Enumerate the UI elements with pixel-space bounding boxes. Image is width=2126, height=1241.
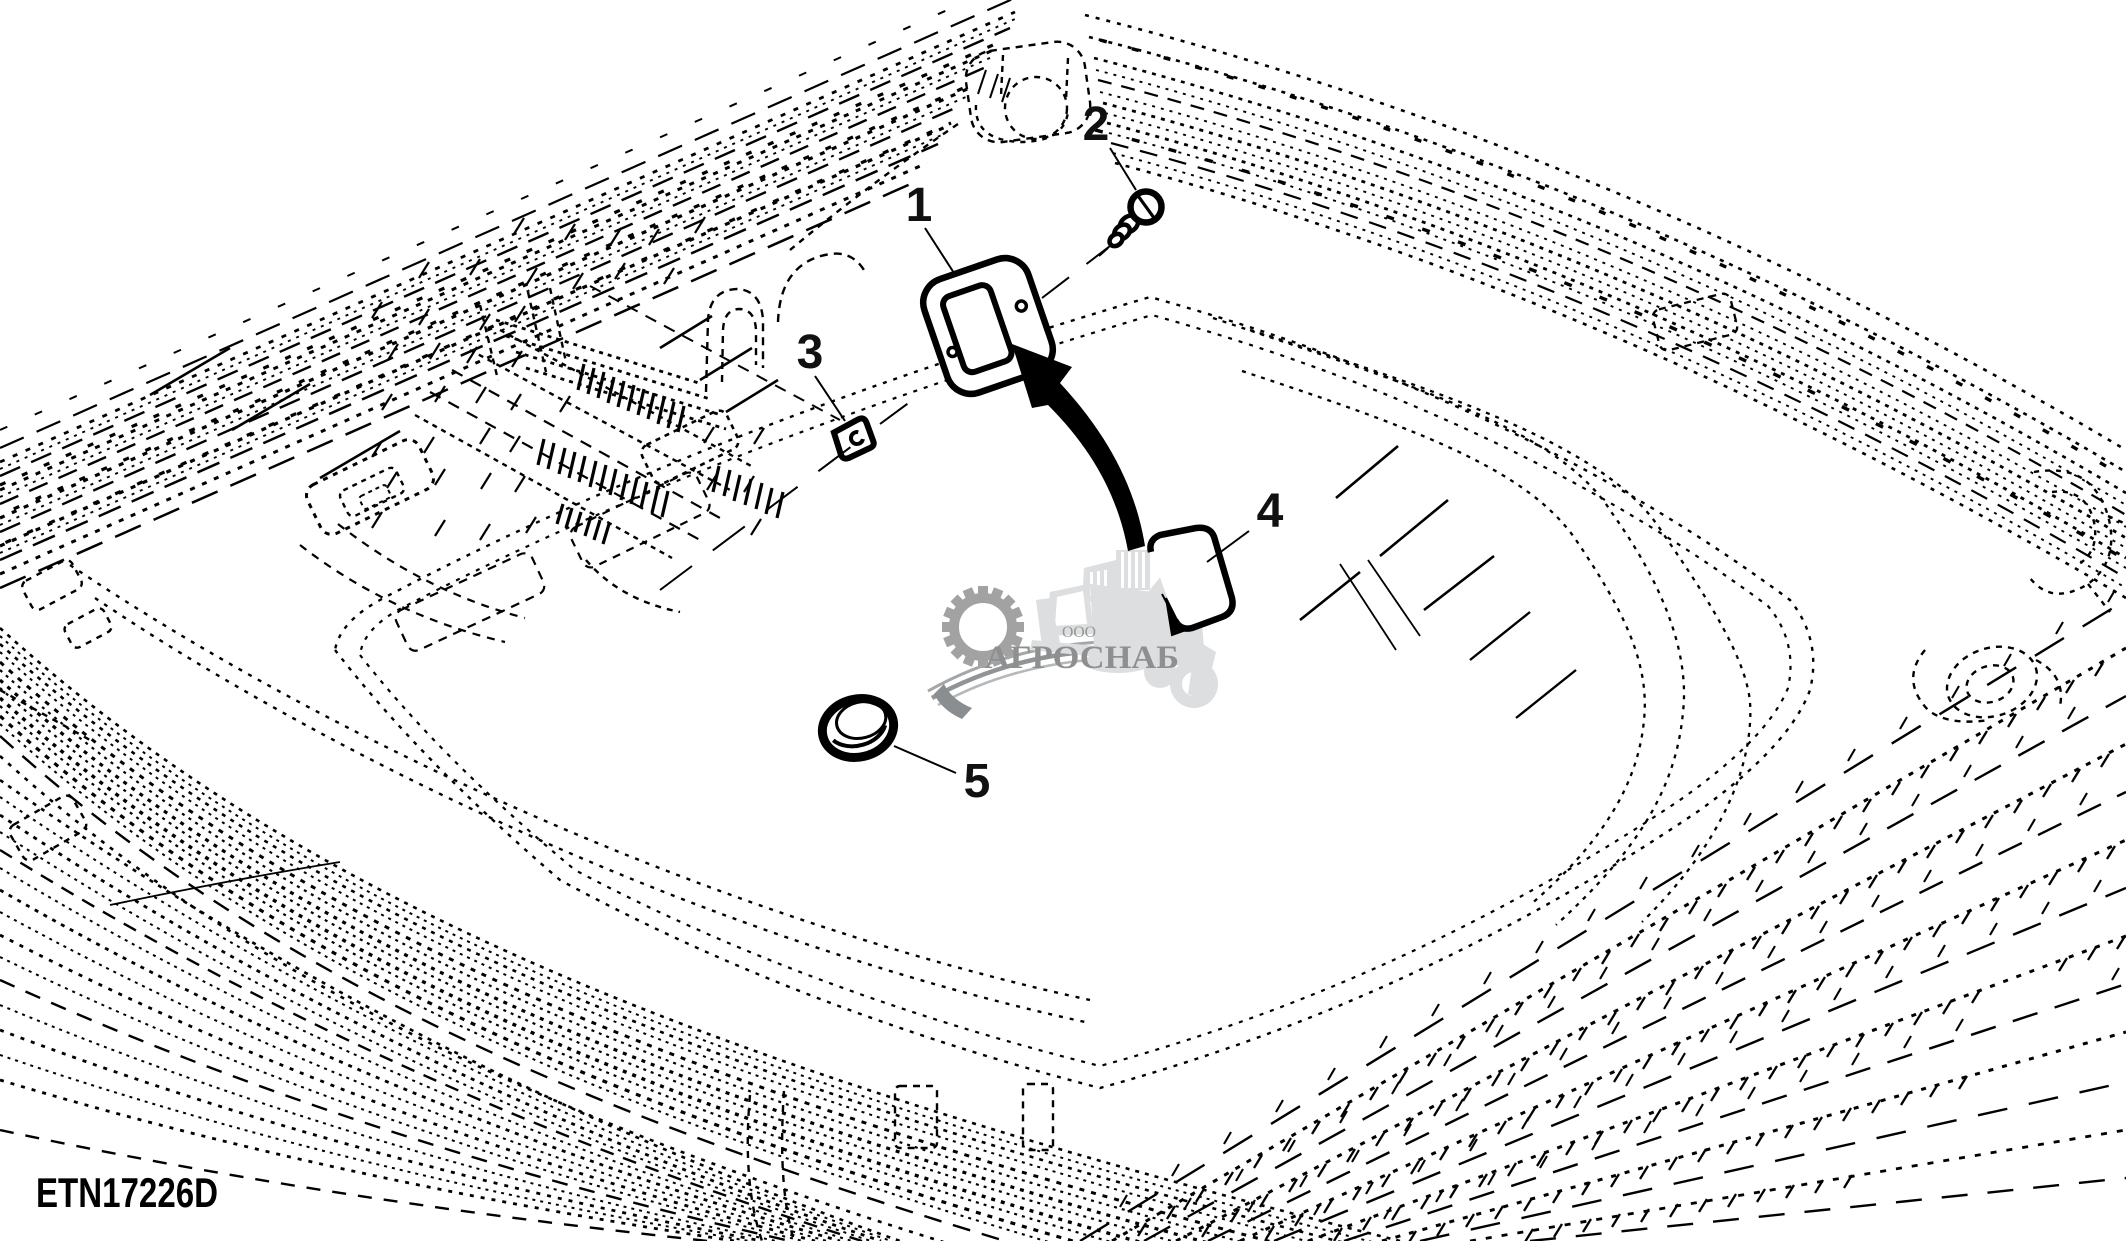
svg-text:5: 5 — [964, 755, 991, 808]
svg-text:ETN17226D: ETN17226D — [36, 1169, 218, 1216]
svg-text:OOO: OOO — [1062, 624, 1096, 641]
svg-text:1: 1 — [906, 179, 933, 232]
svg-text:3: 3 — [797, 326, 824, 379]
svg-text:2: 2 — [1083, 98, 1110, 151]
svg-text:4: 4 — [1257, 485, 1284, 538]
svg-text:АГРОСНАБ: АГРОСНАБ — [985, 640, 1179, 676]
